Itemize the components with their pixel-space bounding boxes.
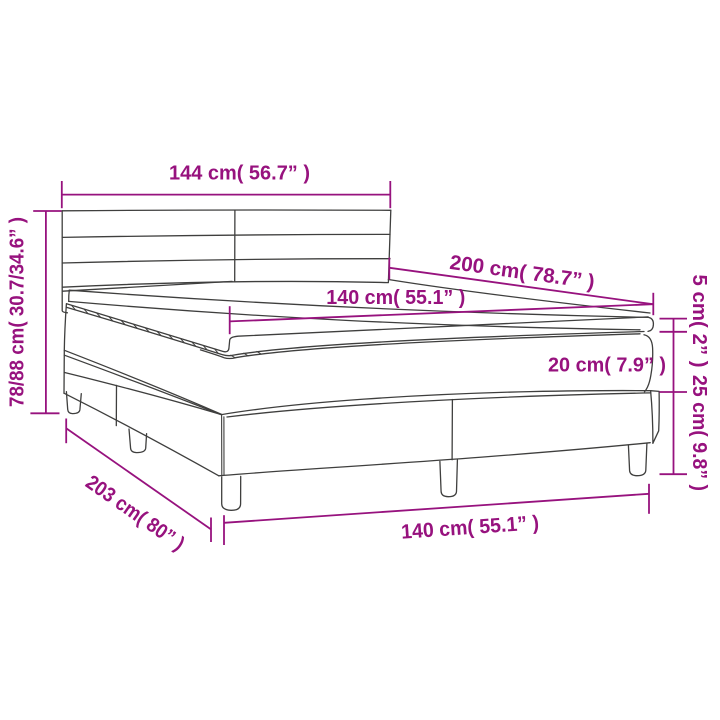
svg-text:140 cm( 55.1” ): 140 cm( 55.1” ) — [326, 286, 465, 309]
svg-text:20 cm( 7.9” ): 20 cm( 7.9” ) — [548, 354, 666, 377]
svg-text:144 cm( 56.7” ): 144 cm( 56.7” ) — [169, 162, 310, 185]
svg-text:5 cm( 2” ): 5 cm( 2” ) — [688, 275, 711, 368]
svg-text:25 cm( 9.8” ): 25 cm( 9.8” ) — [688, 375, 711, 491]
svg-text:78/88 cm( 30.7/34.6” ): 78/88 cm( 30.7/34.6” ) — [6, 217, 29, 407]
